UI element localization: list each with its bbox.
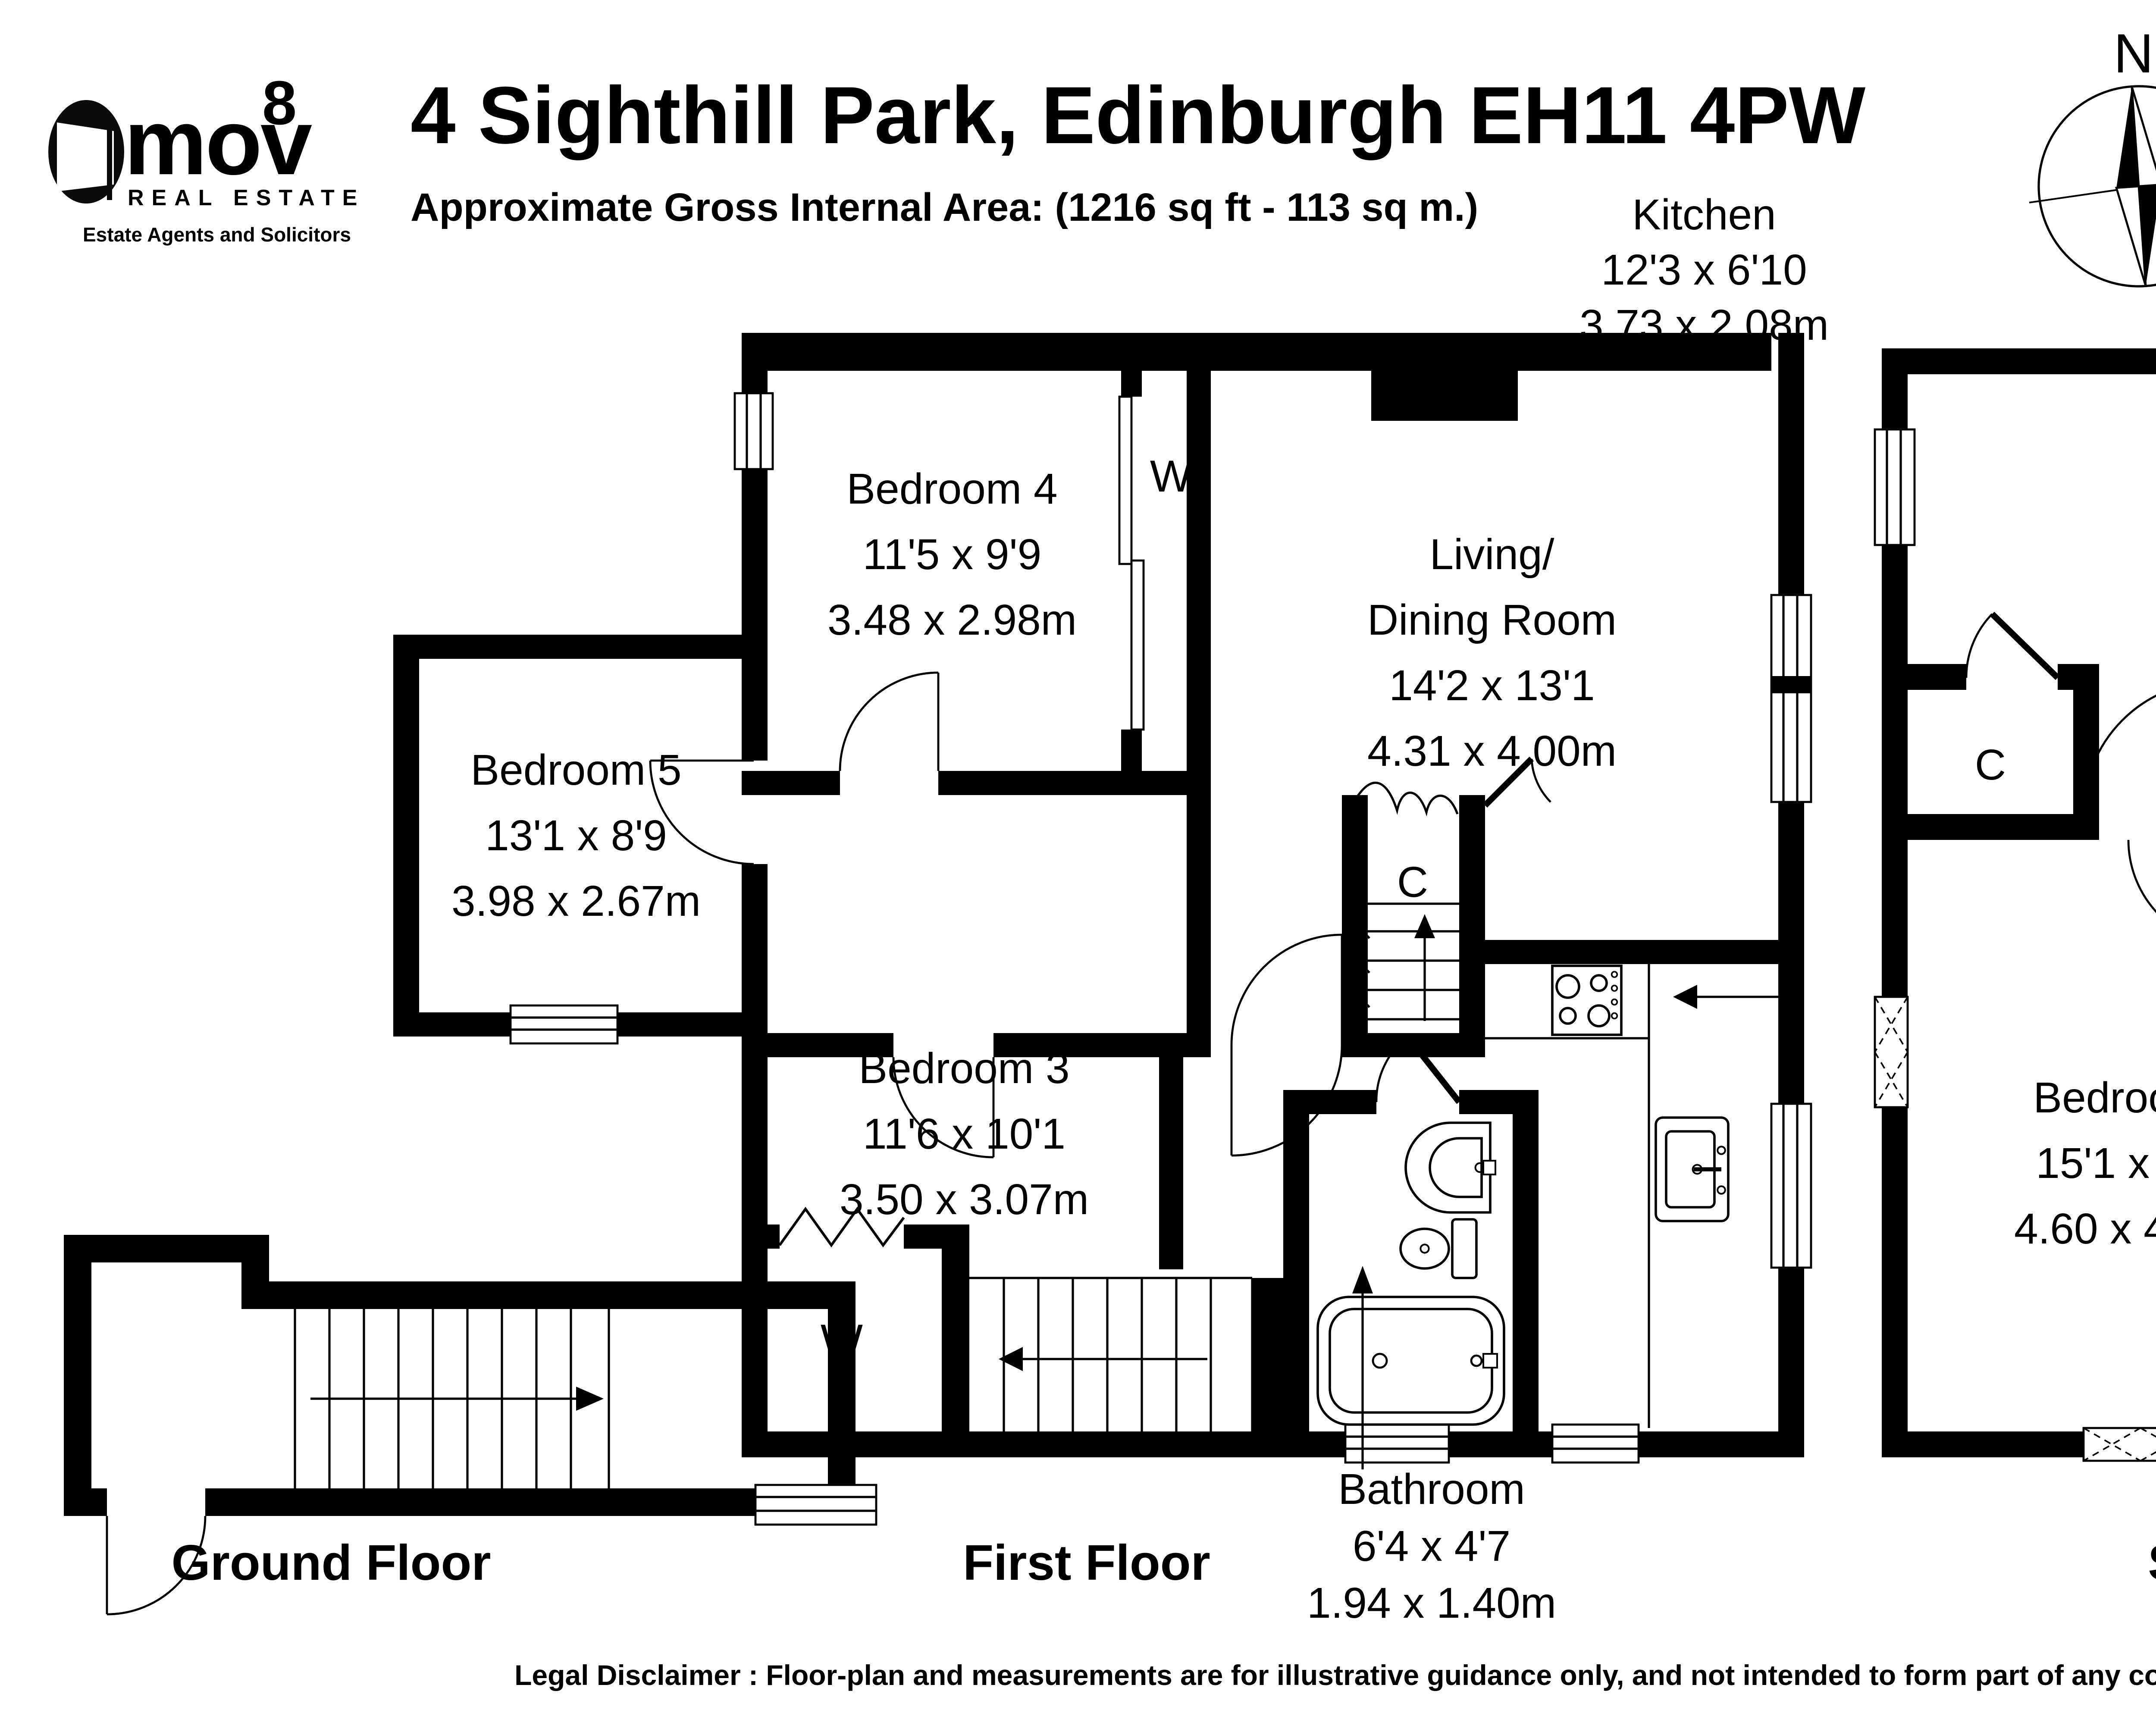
ground-floor-walls (64, 1235, 856, 1516)
wardrobe-label-bedroom4: W (1150, 451, 1192, 501)
living-metric: 4.31 x 4.00m (1367, 727, 1617, 775)
bathtub (1318, 1297, 1504, 1425)
roof-window-bottom (2084, 1428, 2156, 1461)
logo-flagpole-icon (107, 128, 112, 200)
cupboard-label-second-left: C (1975, 741, 2006, 789)
page-title: 4 Sighthill Park, Edinburgh EH11 4PW (411, 70, 1866, 160)
kitchen-name: Kitchen (1632, 191, 1776, 239)
bedroom2-imperial: 15'1 x 13'4 (2036, 1139, 2156, 1187)
toilet (1401, 1219, 1476, 1278)
kitchen-sink (1656, 1118, 1728, 1221)
bathroom-window (1345, 1425, 1449, 1463)
bedroom3-name: Bedroom 3 (859, 1044, 1069, 1093)
bedroom5-imperial: 13'1 x 8'9 (485, 811, 667, 860)
living-dining-label: Living/ Dining Room 14'2 x 13'1 4.31 x 4… (1367, 530, 1617, 775)
ground-floor-label: Ground Floor (172, 1535, 491, 1591)
stairs-up-arrowhead (1414, 914, 1435, 938)
ground-floor-stairs (295, 1309, 609, 1488)
bedroom5-metric: 3.98 x 2.67m (451, 877, 701, 925)
bedroom2-door (2128, 840, 2156, 947)
cupboard-door-second-left (1966, 614, 2058, 678)
legal-disclaimer: Legal Disclaimer : Floor-plan and measur… (514, 1659, 2156, 1691)
mov8-logo: mov 8 REAL ESTATE Estate Agents and Soli… (48, 68, 365, 246)
bedroom4-door (840, 673, 938, 771)
bedroom5-name: Bedroom 5 (470, 746, 681, 794)
bathroom-leader-arrowhead (1352, 1266, 1373, 1293)
kitchen-imperial: 12'3 x 6'10 (1601, 246, 1807, 294)
first-floor-lower-stairs (969, 1278, 1252, 1431)
ground-floor-window (755, 1485, 876, 1525)
second-floor-walls (1882, 348, 2156, 1457)
stairs-down-arrowhead (999, 1347, 1023, 1371)
bathroom-metric: 1.94 x 1.40m (1307, 1579, 1556, 1627)
bedroom4-metric: 3.48 x 2.98m (827, 596, 1077, 644)
bedroom2-label: Bedroom 2 15'1 x 13'4 4.60 x 4.06m (2014, 1074, 2156, 1253)
basin (1406, 1123, 1495, 1212)
bedroom3-label: Bedroom 3 11'6 x 10'1 3.50 x 3.07m (840, 1044, 1089, 1224)
kitchen-window (1771, 1104, 1811, 1268)
kitchen-leader-arrowhead (1673, 985, 1697, 1009)
living-room-window (1771, 595, 1811, 802)
stairs-up-arrowhead (576, 1387, 604, 1411)
bedroom1-left-window (1875, 429, 1915, 545)
logo-superscript: 8 (262, 68, 297, 138)
second-floor-label: Second Floor (2148, 1535, 2156, 1591)
living-name1: Living/ (1429, 530, 1554, 579)
logo-subtagline: Estate Agents and Solicitors (83, 223, 351, 246)
compass (2021, 78, 2156, 294)
page-subtitle: Approximate Gross Internal Area: (1216 s… (411, 185, 1478, 229)
wardrobe-label-bedroom3: W (821, 1315, 863, 1365)
bathroom-fixtures (1318, 1123, 1504, 1425)
living-imperial: 14'2 x 13'1 (1389, 661, 1595, 710)
living-room-door (1232, 935, 1342, 1045)
first-floor-label: First Floor (963, 1535, 1210, 1591)
hob (1552, 966, 1621, 1035)
bedroom3-imperial: 11'6 x 10'1 (863, 1110, 1065, 1158)
bedroom4-imperial: 11'5 x 9'9 (863, 530, 1041, 579)
bathroom-imperial: 6'4 x 4'7 (1353, 1522, 1510, 1570)
bedroom3-metric: 3.50 x 3.07m (840, 1175, 1089, 1224)
bathroom-label: Bathroom 6'4 x 4'7 1.94 x 1.40m (1307, 1465, 1556, 1627)
bedroom5-label: Bedroom 5 13'1 x 8'9 3.98 x 2.67m (451, 746, 701, 925)
bedroom4-label: Bedroom 4 11'5 x 9'9 3.48 x 2.98m (827, 465, 1077, 644)
roof-window-left (1875, 997, 1908, 1107)
bedroom5-window (511, 1005, 617, 1043)
bedroom2-name: Bedroom 2 (2033, 1074, 2156, 1122)
living-name2: Dining Room (1367, 596, 1617, 644)
bedroom4-window (735, 393, 773, 469)
logo-flag-icon (57, 122, 114, 191)
logo-tagline: REAL ESTATE (128, 185, 365, 210)
sliding-wardrobe-doors (1119, 397, 1144, 730)
compass-north-label: N (2114, 23, 2153, 85)
cupboard-label-first: C (1397, 858, 1428, 906)
bathroom-name: Bathroom (1338, 1465, 1525, 1513)
floorplan-canvas: mov 8 REAL ESTATE Estate Agents and Soli… (0, 0, 2156, 1735)
bedroom2-metric: 4.60 x 4.06m (2014, 1205, 2156, 1253)
kitchen-bottom-window (1552, 1425, 1639, 1463)
bedroom4-name: Bedroom 4 (846, 465, 1057, 513)
